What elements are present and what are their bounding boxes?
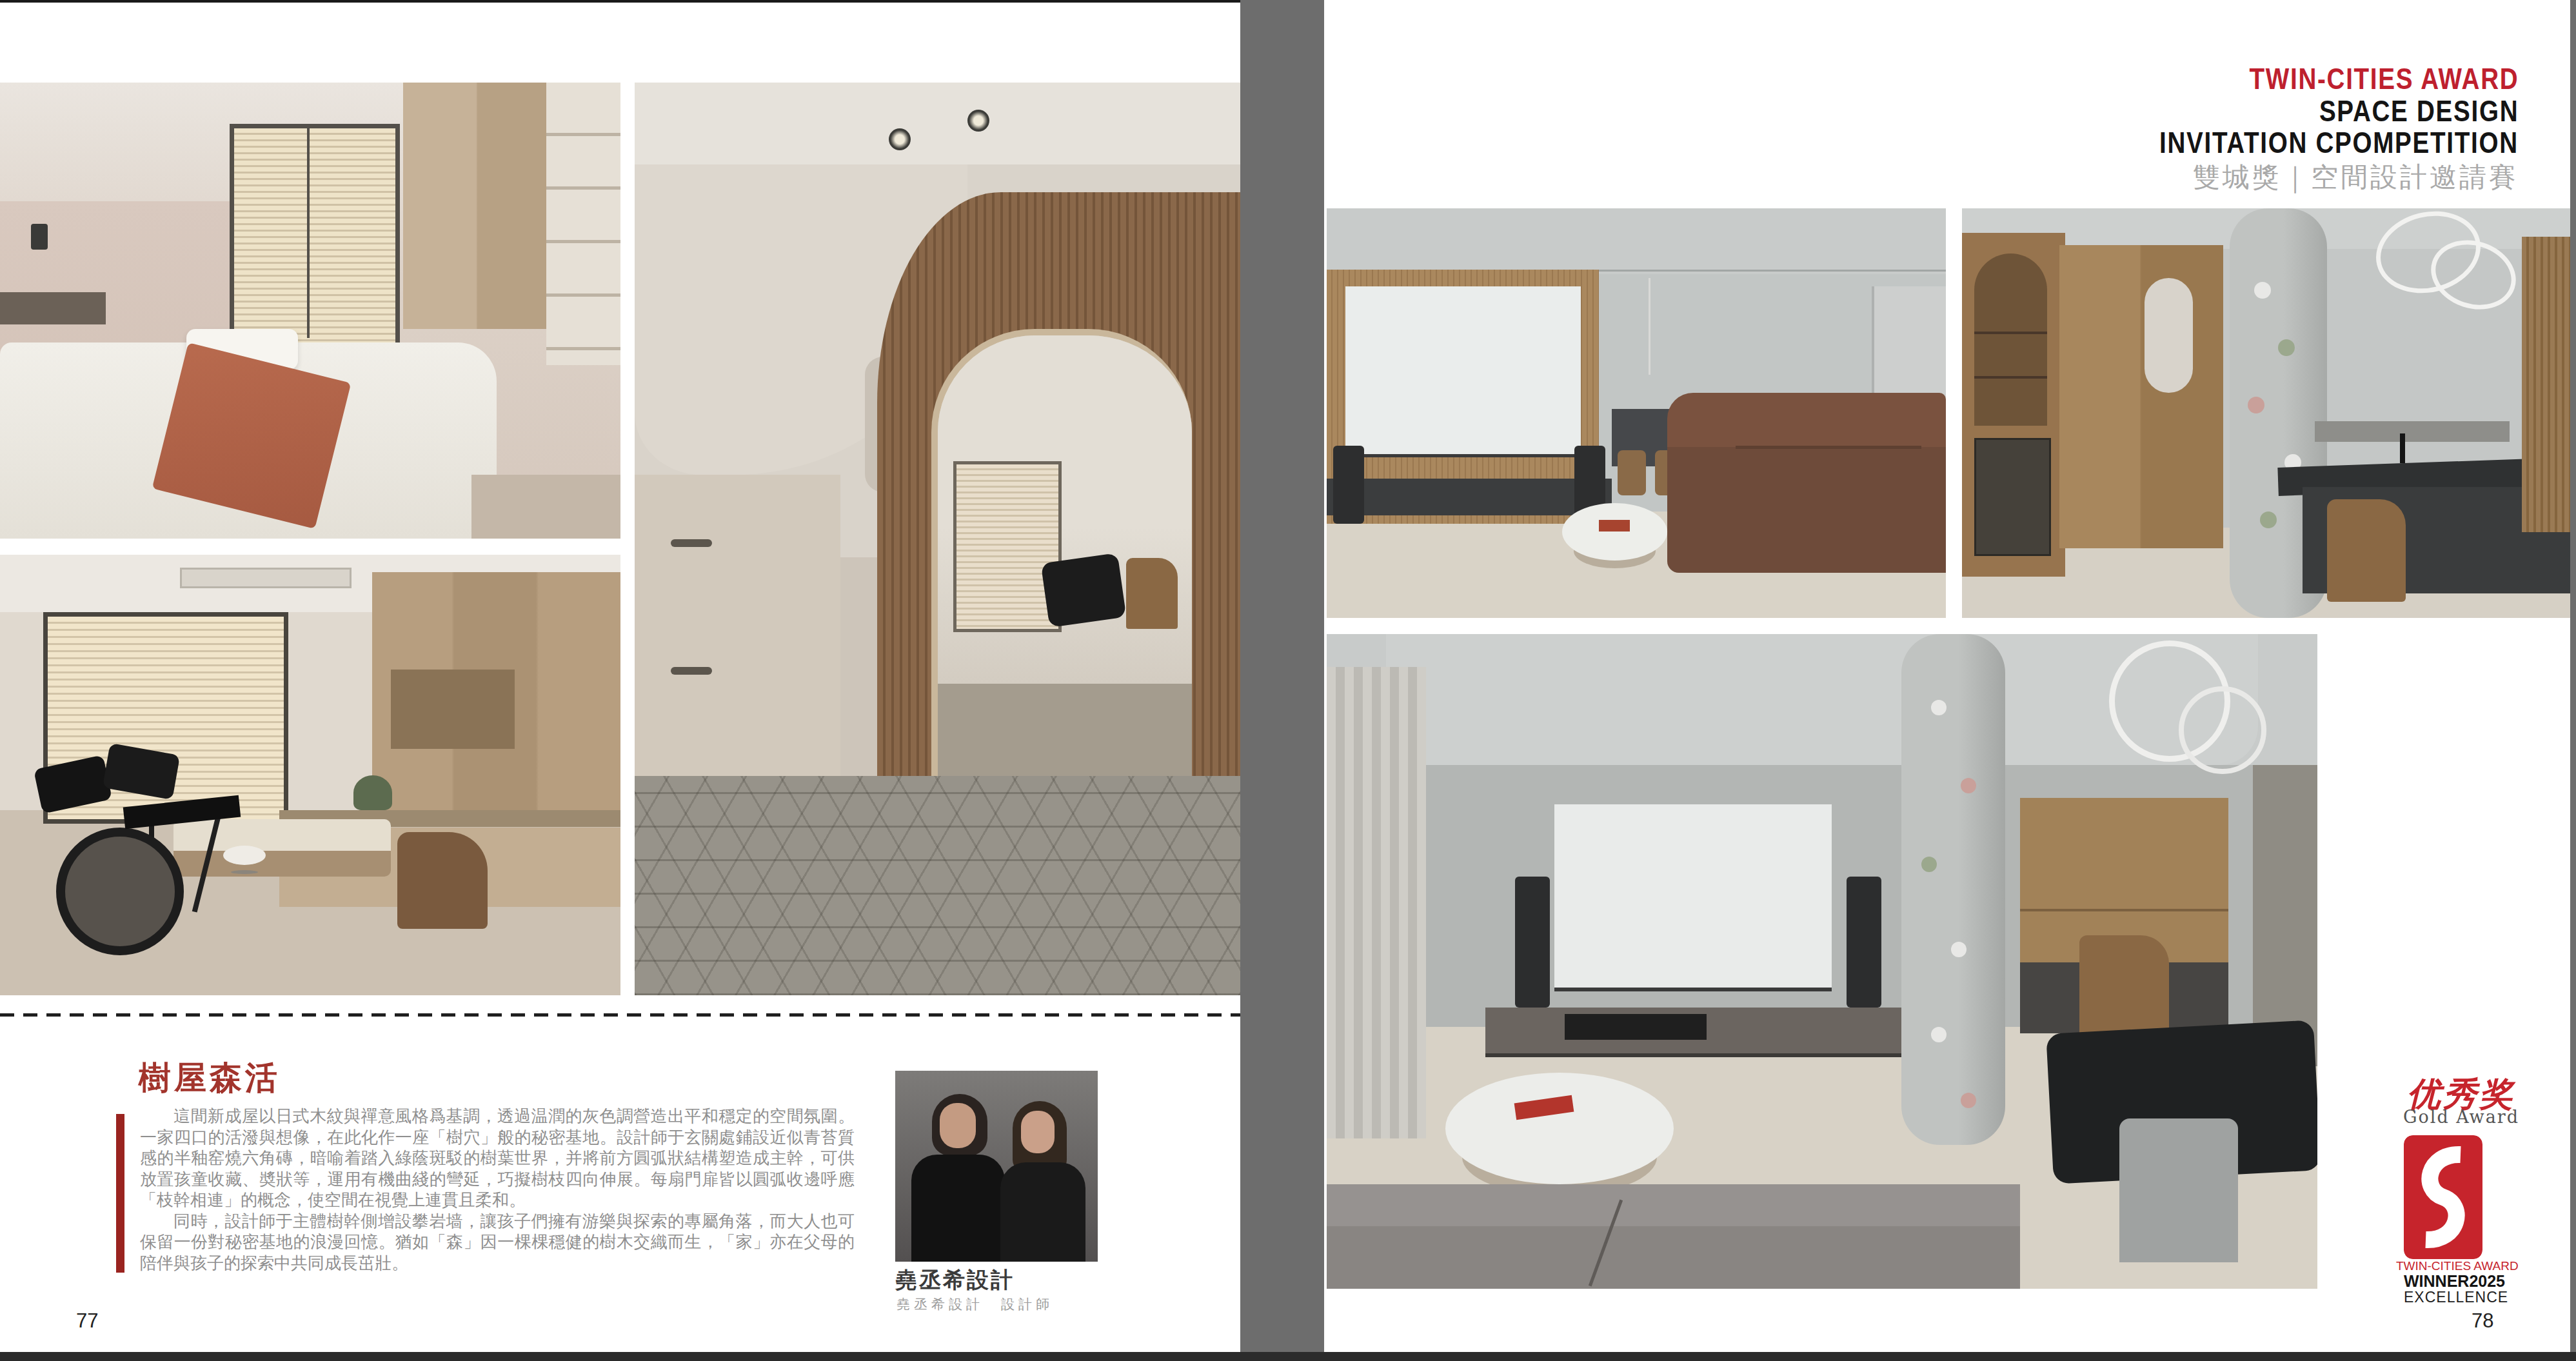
tall-wood-cabinets bbox=[2059, 245, 2224, 548]
glass-cabinet bbox=[1974, 438, 2051, 557]
photo-music-room bbox=[0, 555, 620, 995]
loop-pendant-light bbox=[2179, 686, 2266, 774]
photo-hallway-arch bbox=[635, 83, 1240, 995]
projection-screen bbox=[1554, 804, 1832, 991]
wood-armchair bbox=[397, 832, 488, 929]
bass-drum bbox=[56, 828, 184, 955]
faucet bbox=[2400, 433, 2405, 463]
photo-living-room-sofa bbox=[1327, 208, 1946, 618]
bedroom-window-blinds bbox=[230, 124, 400, 347]
back-counter bbox=[2315, 421, 2510, 442]
article-body: 這間新成屋以日式木紋與禪意風格爲基調，透過温潤的灰色調營造出平和穩定的空間氛圍。… bbox=[140, 1106, 855, 1273]
article-paragraph-2: 同時，設計師于主體樹幹側增設攀岩墙，讓孩子們擁有游樂與探索的專屬角落，而大人也可… bbox=[140, 1211, 855, 1274]
bedroom-shelving bbox=[546, 83, 620, 365]
climbing-hold bbox=[2254, 282, 2271, 299]
inner-chair bbox=[1126, 558, 1178, 629]
designer-1-face bbox=[940, 1103, 976, 1148]
window-mullion bbox=[307, 124, 310, 338]
climbing-hold bbox=[1931, 1027, 1947, 1042]
dashed-divider bbox=[0, 1013, 1240, 1017]
ceiling-spotlight bbox=[889, 128, 911, 150]
leather-sofa bbox=[1667, 393, 1946, 573]
right-page: TWIN-CITIES AWARD SPACE DESIGN INVITATIO… bbox=[1324, 0, 2570, 1352]
red-book bbox=[1599, 520, 1630, 531]
oval-nook bbox=[2145, 278, 2193, 393]
niche-shelf bbox=[1974, 332, 2047, 334]
climbing-hold bbox=[2260, 512, 2277, 528]
climbing-hold bbox=[1951, 942, 1967, 957]
award-heading-line1: TWIN-CITIES AWARD bbox=[2249, 63, 2519, 95]
award-heading-line3: INVITATION CPOMPETITION bbox=[2159, 127, 2519, 159]
bar-stool bbox=[1618, 450, 1646, 495]
potted-plant bbox=[353, 775, 392, 810]
cabinet-handle bbox=[671, 539, 712, 547]
award-heading-subtitle: 雙城獎｜空間設計邀請賽 bbox=[2193, 159, 2519, 195]
cabinet-niche bbox=[391, 670, 515, 749]
magazine-spread: 樹屋森活 這間新成屋以日式木紋與禪意風格爲基調，透過温潤的灰色調營造出平和穩定的… bbox=[0, 0, 2576, 1361]
designer-credit: 堯丞希設計 設計師 bbox=[897, 1295, 1053, 1313]
projection-screen bbox=[1345, 286, 1581, 457]
speaker bbox=[1515, 877, 1550, 1008]
article-title: 樹屋森活 bbox=[139, 1057, 281, 1100]
curtains bbox=[1327, 667, 1426, 1138]
left-page: 樹屋森活 這間新成屋以日式木紋與禪意風格爲基調，透過温潤的灰色調營造出平和穩定的… bbox=[0, 0, 1240, 1352]
winner-label: WINNER bbox=[2404, 1272, 2469, 1291]
photo-bedroom bbox=[0, 83, 620, 539]
hexagonal-tile-floor bbox=[635, 776, 1240, 995]
sofa-seam bbox=[1736, 446, 1921, 449]
designer-1-body bbox=[911, 1155, 1004, 1262]
table-base bbox=[2119, 1118, 2238, 1262]
award-badge-english: Gold Award bbox=[2403, 1107, 2520, 1127]
page-bottom-edge bbox=[0, 1352, 2576, 1361]
drum-stool bbox=[223, 846, 266, 865]
cabinet-line bbox=[2020, 909, 2228, 911]
av-equipment bbox=[1565, 1014, 1707, 1040]
winner-year: 2025 bbox=[2469, 1272, 2505, 1291]
twin-cities-award-logo bbox=[2404, 1135, 2482, 1259]
designer-portrait-photo bbox=[895, 1071, 1098, 1262]
award-heading-line2: SPACE DESIGN bbox=[2319, 95, 2519, 127]
page-number-left: 77 bbox=[76, 1309, 98, 1333]
photo-kitchen-climbing-column bbox=[1962, 208, 2570, 618]
article-paragraph-1: 這間新成屋以日式木紋與禪意風格爲基調，透過温潤的灰色調營造出平和穩定的空間氛圍。… bbox=[140, 1106, 855, 1211]
pendant-light-cord bbox=[1649, 278, 1650, 375]
designer-2-body bbox=[1000, 1162, 1085, 1262]
article-accent-bar bbox=[116, 1114, 124, 1273]
award-badge-excellence: EXCELLENCE bbox=[2404, 1289, 2488, 1306]
bedroom-floor bbox=[471, 475, 620, 539]
arch-niche bbox=[1974, 253, 2047, 426]
wood-chair bbox=[2327, 499, 2406, 602]
round-coffee-table bbox=[1562, 503, 1667, 561]
speaker bbox=[1847, 877, 1881, 1008]
arched-doorway bbox=[931, 329, 1192, 819]
ceiling-spotlight bbox=[967, 110, 989, 132]
wall-socket bbox=[31, 224, 48, 250]
climbing-column bbox=[1901, 634, 2005, 1145]
climbing-hold bbox=[1921, 857, 1937, 872]
page-top-edge bbox=[0, 0, 1240, 3]
page-number-right: 78 bbox=[2472, 1309, 2493, 1333]
gray-sofa bbox=[1327, 1184, 2020, 1289]
cabinet-handle bbox=[671, 667, 712, 675]
wood-slat-screen bbox=[2522, 237, 2570, 531]
climbing-hold bbox=[1931, 700, 1947, 715]
designer-name: 堯丞希設計 bbox=[895, 1266, 1015, 1295]
floating-desk bbox=[0, 292, 106, 324]
award-badge-winner: WINNER 2025 bbox=[2404, 1272, 2482, 1291]
tv-console bbox=[1327, 479, 1612, 515]
climbing-hold bbox=[1961, 1093, 1976, 1108]
designer-2-face bbox=[1021, 1111, 1055, 1153]
ac-vent bbox=[180, 568, 352, 588]
oval-coffee-table bbox=[1445, 1073, 1673, 1184]
award-badge-line1: TWIN-CITIES AWARD bbox=[2396, 1259, 2490, 1273]
bedroom-wardrobe bbox=[403, 83, 552, 329]
inner-window bbox=[953, 461, 1062, 632]
niche-shelf bbox=[1974, 376, 2047, 379]
inner-drumkit bbox=[1040, 553, 1126, 628]
photo-living-room-wide bbox=[1327, 634, 2317, 1289]
speaker bbox=[1333, 446, 1364, 524]
